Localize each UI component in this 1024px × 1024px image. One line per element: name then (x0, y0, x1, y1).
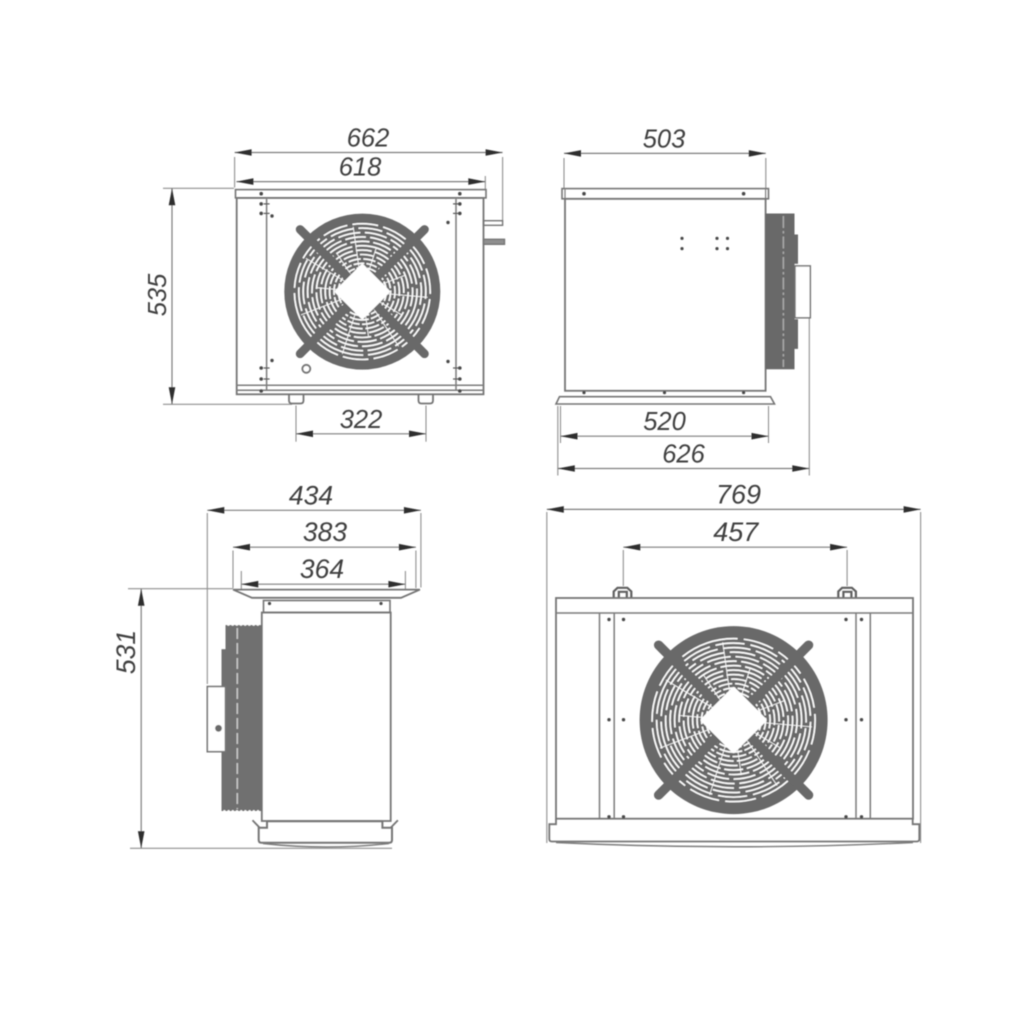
svg-text:535: 535 (144, 273, 172, 316)
svg-text:618: 618 (339, 154, 382, 182)
svg-text:531: 531 (111, 630, 141, 674)
svg-text:769: 769 (716, 479, 761, 509)
svg-text:520: 520 (643, 408, 686, 436)
svg-text:457: 457 (713, 517, 759, 547)
svg-text:322: 322 (340, 406, 383, 434)
svg-text:662: 662 (347, 125, 390, 153)
svg-text:383: 383 (303, 517, 347, 547)
svg-text:503: 503 (643, 125, 686, 153)
svg-text:434: 434 (289, 480, 333, 510)
svg-text:626: 626 (662, 441, 705, 469)
svg-text:364: 364 (300, 554, 344, 584)
